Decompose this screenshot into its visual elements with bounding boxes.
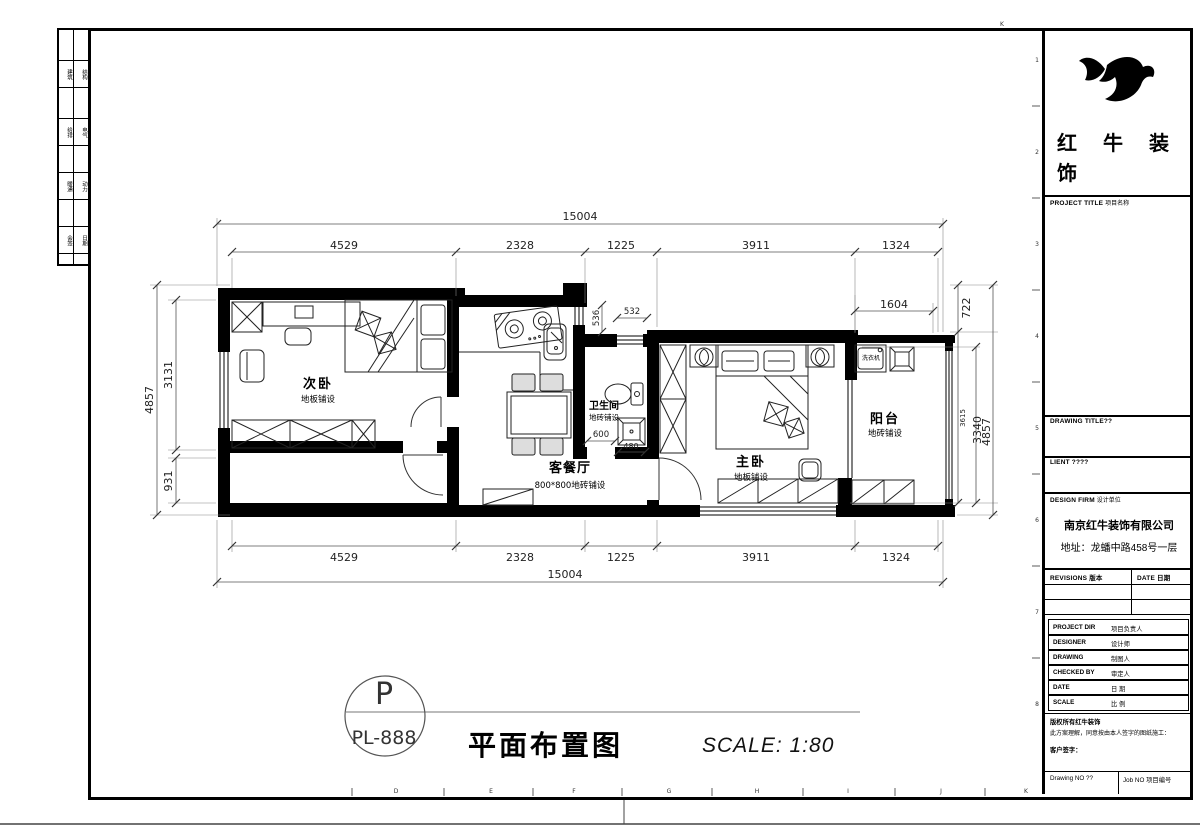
drawing-no-row: Drawing NO ?? Job NO 项目编号 xyxy=(1045,771,1193,794)
drawing-no-label: Drawing NO ?? xyxy=(1050,775,1093,782)
revisions-table: REVISIONS 版本 DATE 日期 xyxy=(1045,568,1193,614)
company-name: 南京红牛装饰有限公司 xyxy=(1045,517,1193,533)
drawing-sheet: 15004 4529 2328 1225 3911 1324 4529 2328… xyxy=(0,0,1200,827)
strip-row: 建筑 结构 xyxy=(59,60,89,88)
design-firm-row: DESIGN FIRM 设计单位 xyxy=(1050,495,1121,504)
sheet-border xyxy=(88,28,1193,800)
copyright-note: 版权所有红牛装饰 此方案理解，同意按由本人签字的图纸施工： 客户签字： xyxy=(1050,717,1188,754)
info-row-scale: SCALE比 例 xyxy=(1048,694,1189,711)
strip-row: 给排 电气 xyxy=(59,118,89,146)
project-title-row: PROJECT TITLE 项目名称 xyxy=(1050,198,1129,207)
company-address: 地址：龙蟠中路458号一层 xyxy=(1045,539,1193,554)
client-row: LIENT ???? xyxy=(1050,459,1088,466)
strip-row: 暖通 动力 xyxy=(59,172,89,200)
title-block: 红牛装 饰 PROJECT TITLE 项目名称 DRAWING TITLE??… xyxy=(1042,31,1193,794)
signature-strip: 建筑 结构 给排 电气 暖通 动力 会签 日期 xyxy=(57,28,89,266)
company-logo-icon xyxy=(1075,53,1161,119)
drawing-title: 平面布置图 xyxy=(468,724,623,764)
job-no-label: Job NO 项目编号 xyxy=(1123,775,1171,784)
drawing-title-row: DRAWING TITLE?? xyxy=(1050,418,1112,425)
corner-letter: K xyxy=(1000,21,1005,28)
company-name-line2: 饰 xyxy=(1057,157,1077,186)
sheet-edge-lines xyxy=(0,800,1200,824)
company-name-line1: 红牛装 xyxy=(1057,127,1195,156)
strip-row: 会签 日期 xyxy=(59,226,89,254)
scale-text: SCALE: 1:80 xyxy=(702,734,834,758)
customer-signature-label: 客户签字： xyxy=(1050,745,1188,754)
